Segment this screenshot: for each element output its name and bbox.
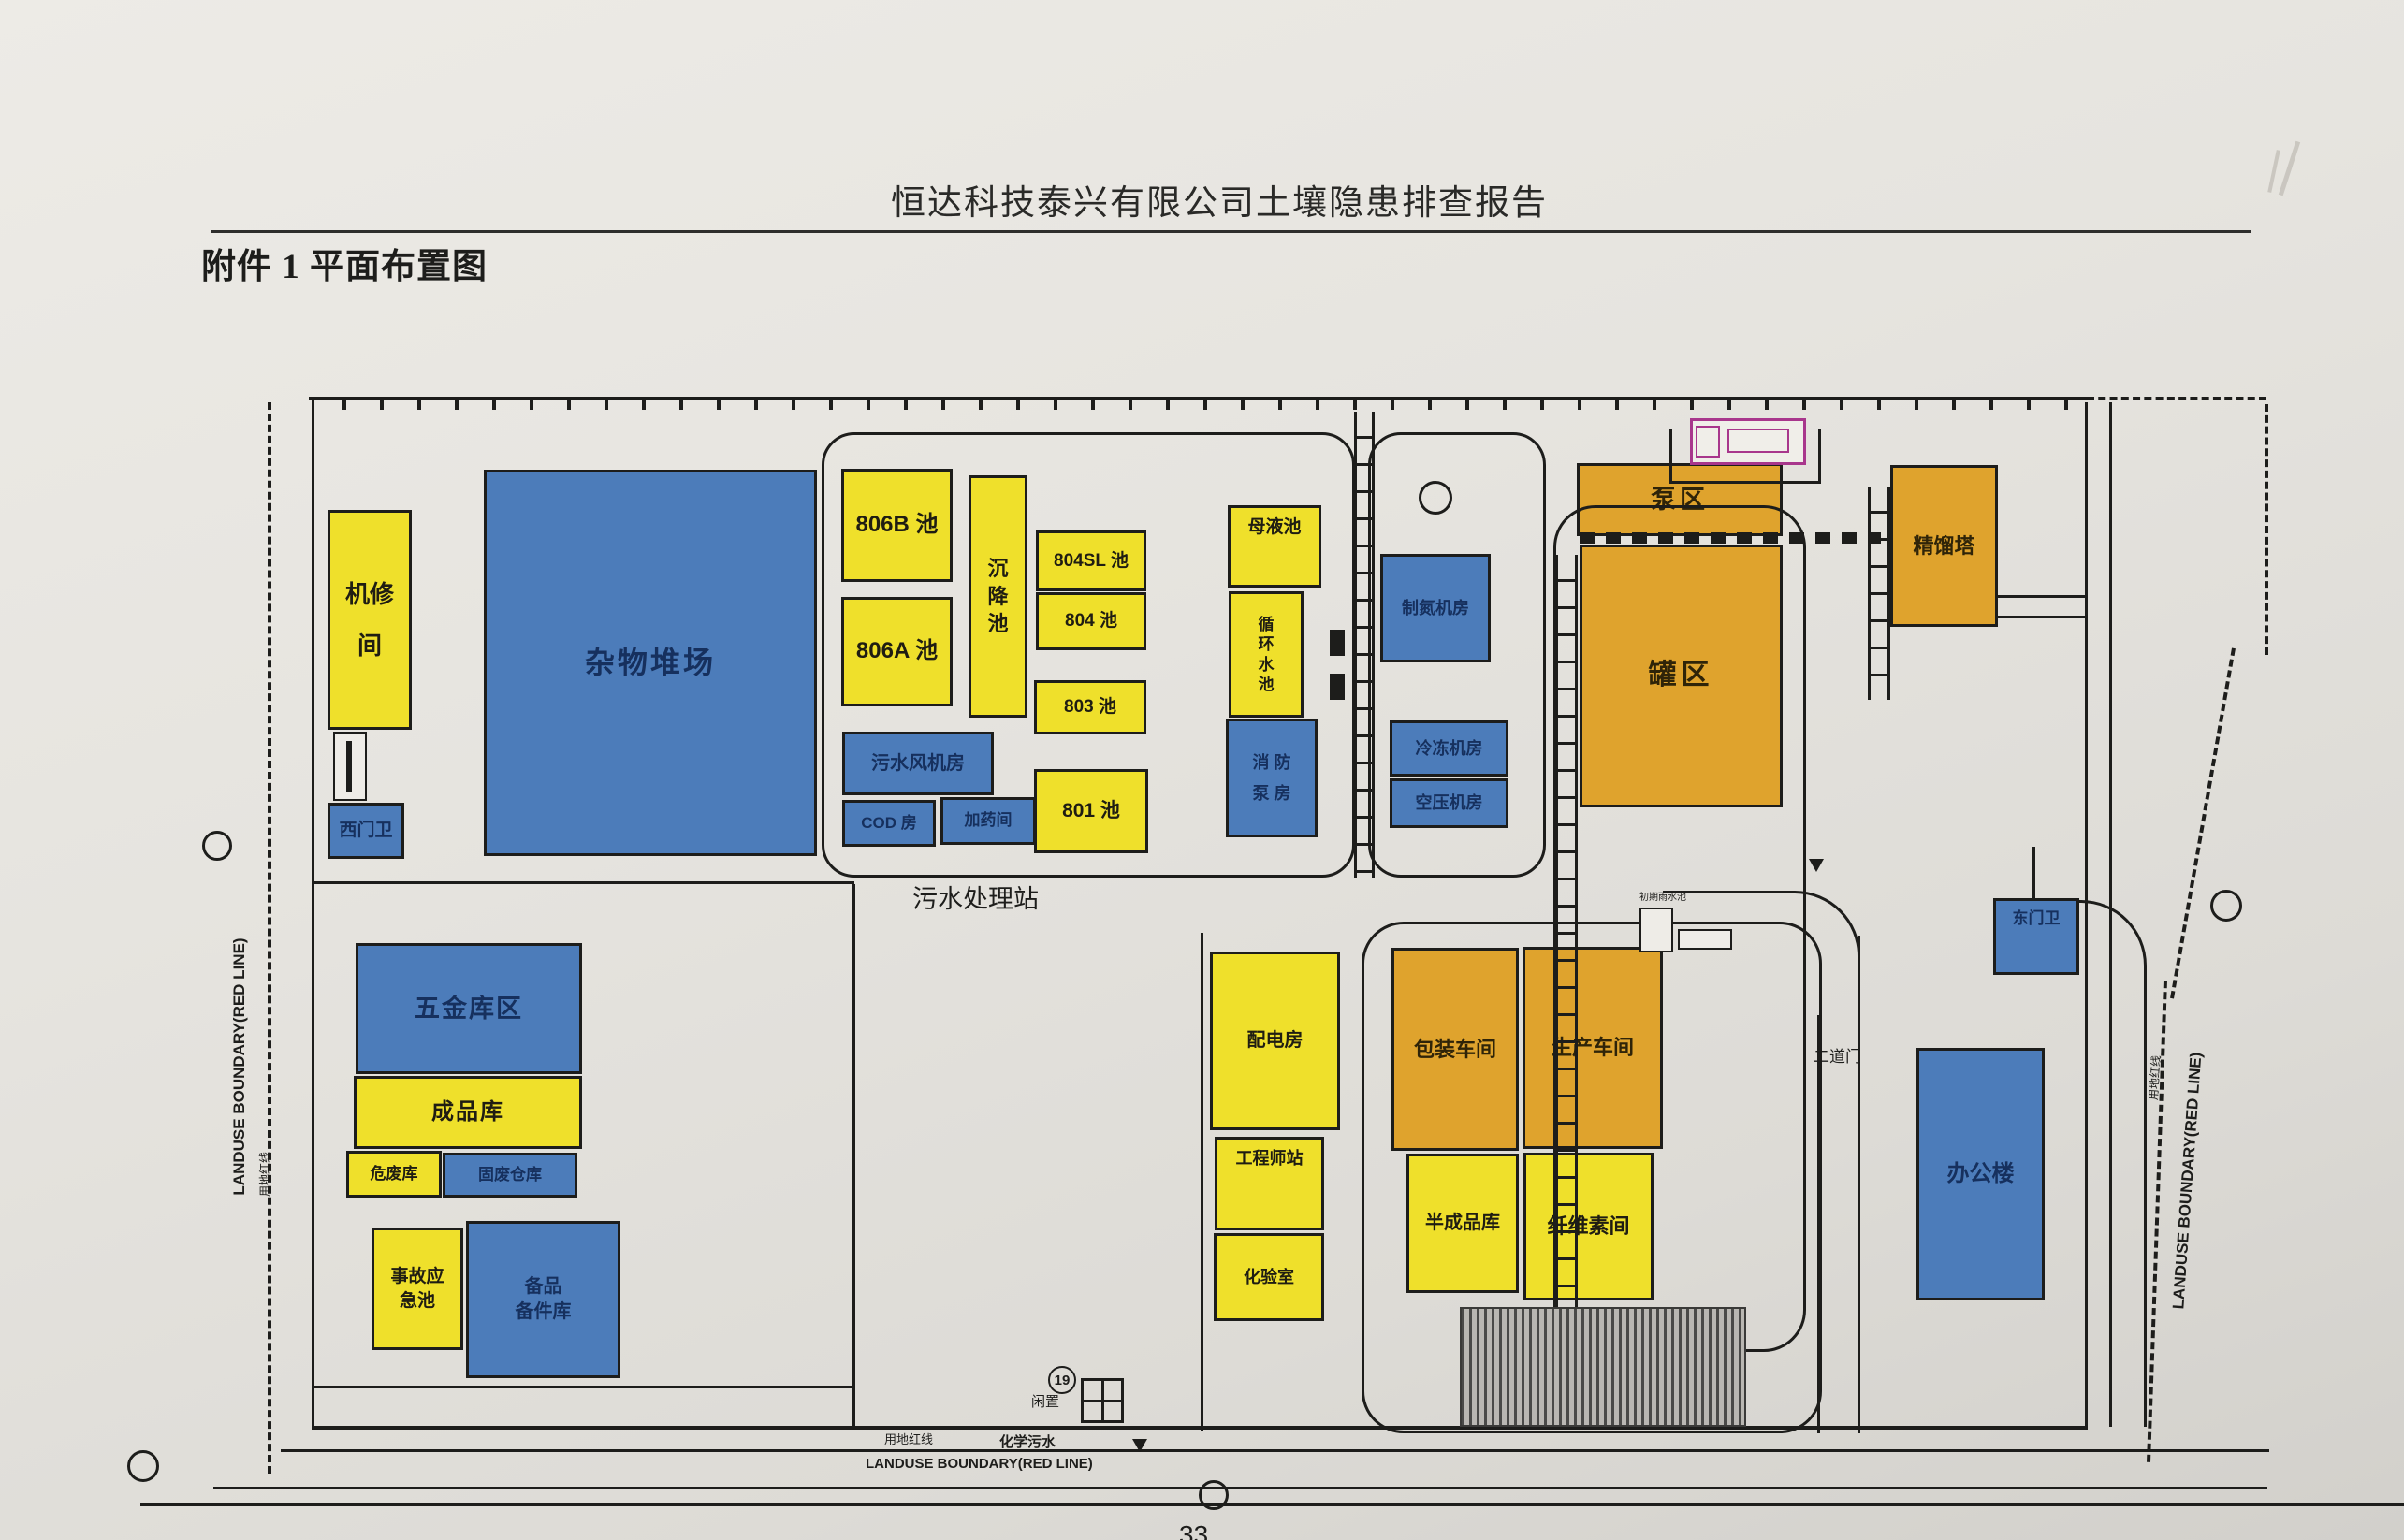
- office-building-label: 办公楼: [1947, 1159, 2015, 1189]
- idle-label: 闲置: [1031, 1394, 1059, 1411]
- power-distribution-room: 配电房: [1210, 952, 1340, 1130]
- ladder-14: [1354, 412, 1375, 878]
- circle-24: [2210, 890, 2242, 922]
- lineh-3: [281, 1449, 2269, 1452]
- landuse-boundary-bottom: LANDUSE BOUNDARY(RED LINE): [866, 1456, 1093, 1473]
- sundries-yard-label: 杂物堆场: [585, 643, 716, 683]
- dashedv-18: [268, 402, 271, 1474]
- ladder-16: [1868, 487, 1890, 700]
- loop-11: [1368, 432, 1546, 878]
- finished-warehouse-label: 成品库: [431, 1097, 504, 1127]
- loop-10: [822, 432, 1355, 878]
- site-plan-drawing: 机修 间西门卫杂物堆场806B 池806A 池沉 降 池804SL 池804 池…: [0, 0, 2404, 1540]
- engineer-station: 工程师站: [1215, 1137, 1324, 1230]
- linev-44: [2032, 847, 2035, 900]
- spare-parts-warehouse: 备品 备件库: [466, 1221, 620, 1378]
- ladder-15: [1555, 555, 1578, 1331]
- distillation-tower: 精馏塔: [1890, 465, 1998, 627]
- idle-area-marker: 19: [1048, 1366, 1076, 1394]
- solid-waste-warehouse-label: 固废仓库: [478, 1165, 542, 1186]
- hazardous-waste-warehouse-label: 危废库: [371, 1164, 418, 1185]
- dashedv-20: [2265, 404, 2268, 655]
- scanned-report-page: { "page": { "header_title": "恒达科技泰兴有限公司土…: [0, 0, 2404, 1540]
- pen-53: [2267, 150, 2280, 193]
- spare-parts-warehouse-label: 备品 备件库: [516, 1274, 572, 1325]
- linev-48: [1858, 936, 1860, 1433]
- engineer-station-label: 工程师站: [1236, 1147, 1304, 1170]
- linev-1: [312, 400, 314, 1430]
- dark-28: [1330, 630, 1345, 656]
- redline-cn-bottom: 用地红线: [884, 1432, 933, 1447]
- dashedv-21: [2170, 648, 2236, 999]
- circle-25: [1199, 1480, 1229, 1510]
- linev-9: [1201, 933, 1203, 1431]
- lineh-2: [312, 1426, 2088, 1430]
- accident-emergency-pool-label: 事故应 急池: [390, 1265, 444, 1313]
- hazardous-waste-warehouse: 危废库: [346, 1151, 442, 1198]
- circle-23: [202, 831, 232, 861]
- accident-emergency-pool: 事故应 急池: [372, 1228, 463, 1350]
- lineh-6: [313, 1386, 854, 1388]
- west-gatehouse-label: 西门卫: [339, 819, 392, 843]
- tri-39: [1132, 1439, 1147, 1452]
- page-number: 33: [1179, 1519, 1208, 1540]
- finished-warehouse: 成品库: [354, 1076, 582, 1149]
- linev-47: [1817, 1015, 1820, 1433]
- linev-46: [2144, 995, 2147, 1427]
- office-building: 办公楼: [1916, 1048, 2045, 1300]
- machine-repair-room-label: 机修 间: [345, 569, 394, 671]
- grid4-37: [1081, 1378, 1124, 1423]
- lineh-5: [140, 1503, 2404, 1506]
- fence-0: [309, 397, 2087, 410]
- rainwater-pool-label: 初期雨水池: [1639, 893, 1686, 904]
- landuse-boundary-right: LANDUSE BOUNDARY(RED LINE): [2169, 1052, 2207, 1310]
- distillation-tower-label: 精馏塔: [1913, 532, 1974, 560]
- redline-cn-left: 用地红线: [258, 1152, 271, 1197]
- east-gatehouse-label: 东门卫: [2013, 908, 2061, 930]
- hatch-34: [1460, 1307, 1746, 1427]
- truckcab-33: [1696, 426, 1720, 458]
- lineh-43: [1998, 616, 2088, 618]
- circle-26: [127, 1450, 159, 1482]
- circle-27: [1419, 481, 1452, 515]
- sundries-yard: 杂物堆场: [484, 470, 817, 856]
- sewage-station-label: 污水处理站: [912, 884, 1039, 914]
- lineh-42: [1998, 595, 2088, 598]
- dashstrip-17: [1580, 532, 1881, 544]
- curvetr-45: [2079, 900, 2147, 997]
- east-gatehouse: 东门卫: [1993, 898, 2079, 975]
- truckinner-32: [1727, 429, 1789, 453]
- tri-38: [1809, 859, 1824, 872]
- laboratory: 化验室: [1214, 1233, 1324, 1321]
- laboratory-label: 化验室: [1244, 1266, 1294, 1288]
- lineh-4: [213, 1487, 2267, 1489]
- hardware-warehouse-label: 五金库区: [415, 992, 523, 1025]
- chemical-sewage-label: 化学污水: [999, 1434, 1056, 1451]
- dashedv-22: [2147, 981, 2167, 1462]
- curvetr-49: [1663, 891, 1860, 956]
- linev-7: [852, 884, 855, 1427]
- second-gate-label: 二道门: [1814, 1048, 1861, 1067]
- dark-51: [346, 741, 352, 792]
- pen-54: [2279, 141, 2300, 196]
- machine-repair-room: 机修 间: [328, 510, 412, 730]
- landuse-boundary-left: LANDUSE BOUNDARY(RED LINE): [230, 937, 249, 1195]
- hardware-warehouse: 五金库区: [356, 943, 582, 1074]
- solid-waste-warehouse: 固废仓库: [443, 1153, 577, 1198]
- dashedh-19: [2087, 397, 2266, 400]
- dark-29: [1330, 674, 1345, 700]
- west-gatehouse: 西门卫: [328, 803, 404, 859]
- power-distribution-room-label: 配电房: [1247, 1028, 1304, 1053]
- lineh-8: [313, 881, 854, 884]
